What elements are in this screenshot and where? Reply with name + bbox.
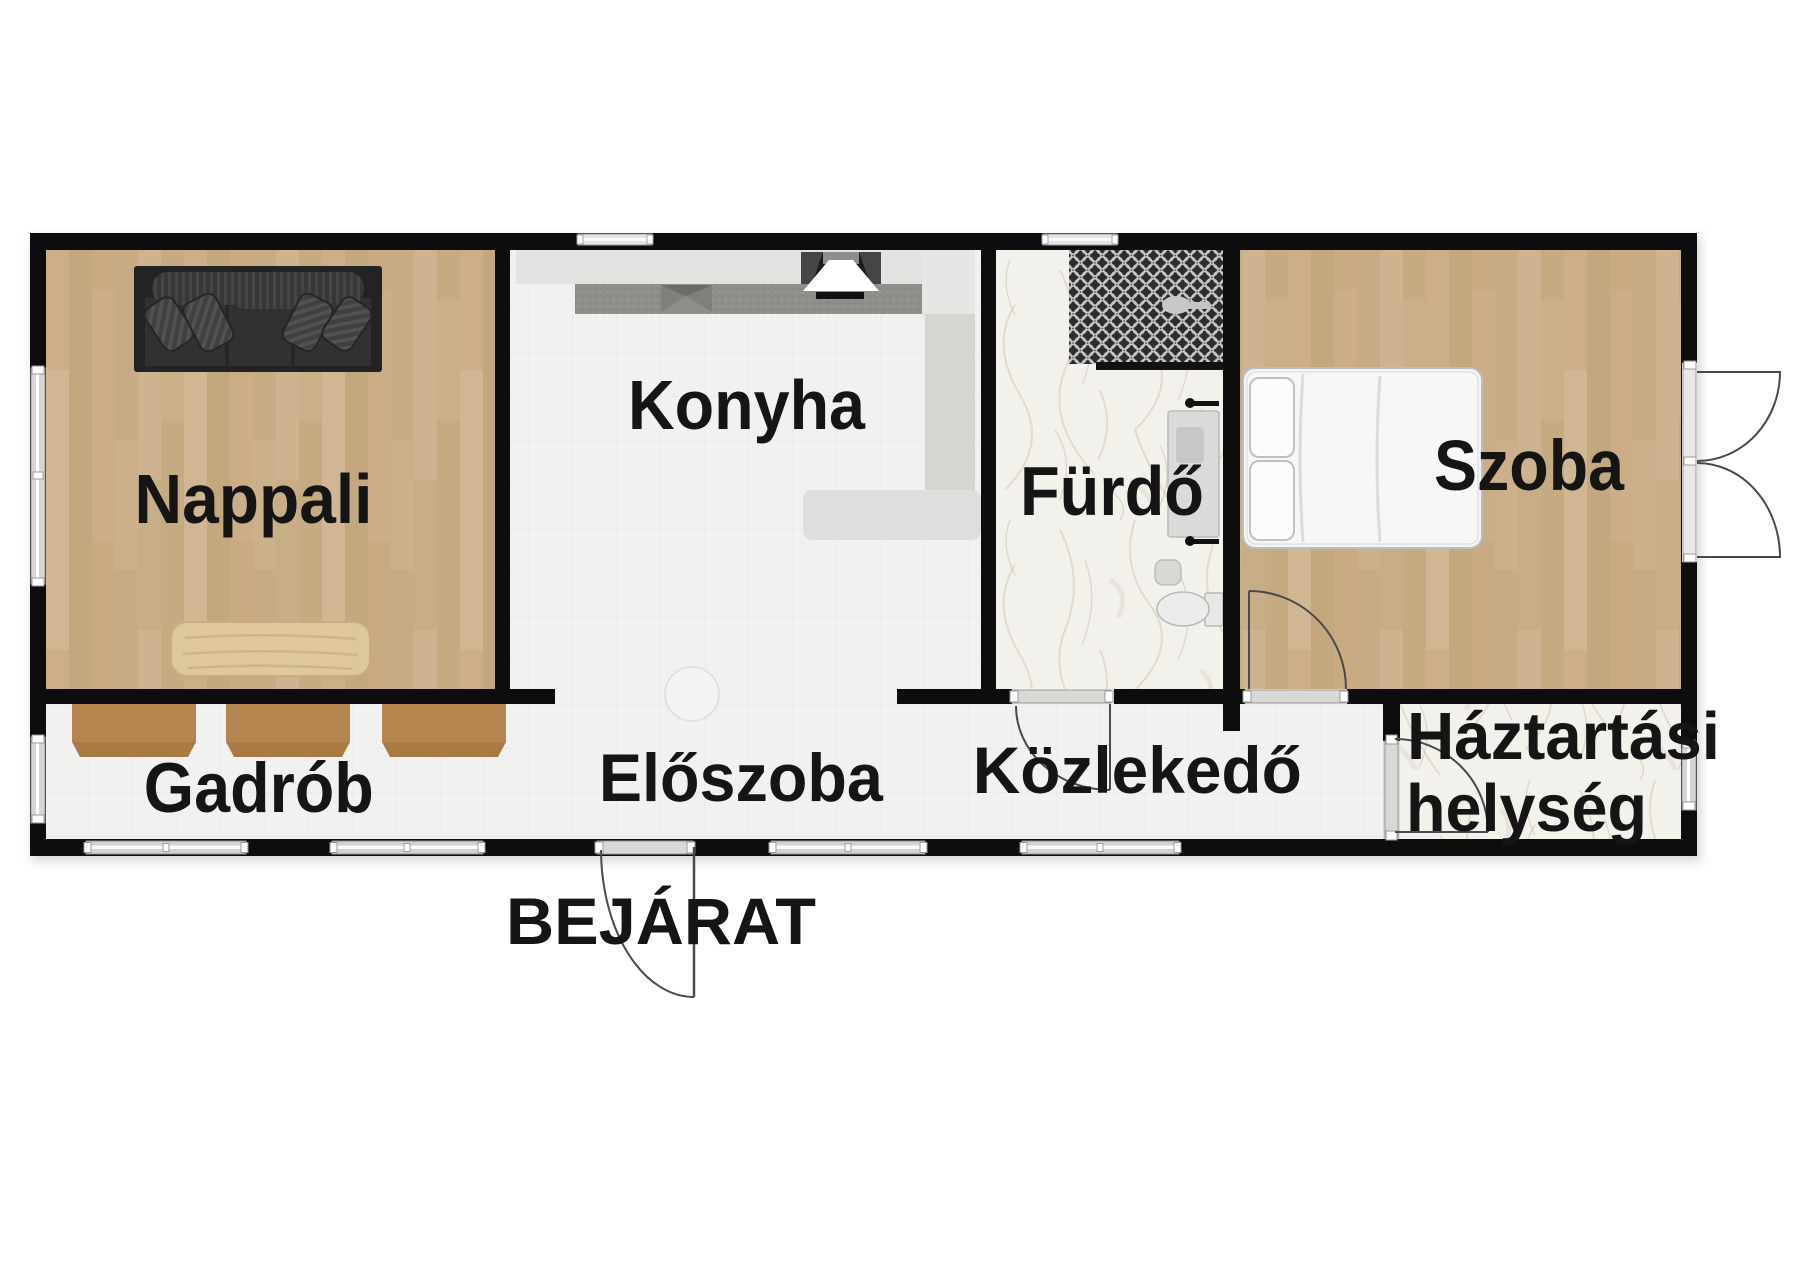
svg-text:Nappali: Nappali (135, 460, 373, 538)
svg-text:Fürdő: Fürdő (1020, 452, 1204, 530)
svg-text:Közlekedő: Közlekedő (973, 733, 1302, 807)
svg-text:Gadrób: Gadrób (144, 748, 374, 827)
svg-text:helység: helység (1406, 772, 1647, 846)
svg-text:Előszoba: Előszoba (599, 741, 884, 816)
svg-text:Konyha: Konyha (628, 366, 866, 444)
svg-text:Szoba: Szoba (1434, 426, 1625, 506)
svg-text:Háztartási: Háztartási (1407, 700, 1720, 774)
svg-text:BEJÁRAT: BEJÁRAT (506, 884, 816, 958)
